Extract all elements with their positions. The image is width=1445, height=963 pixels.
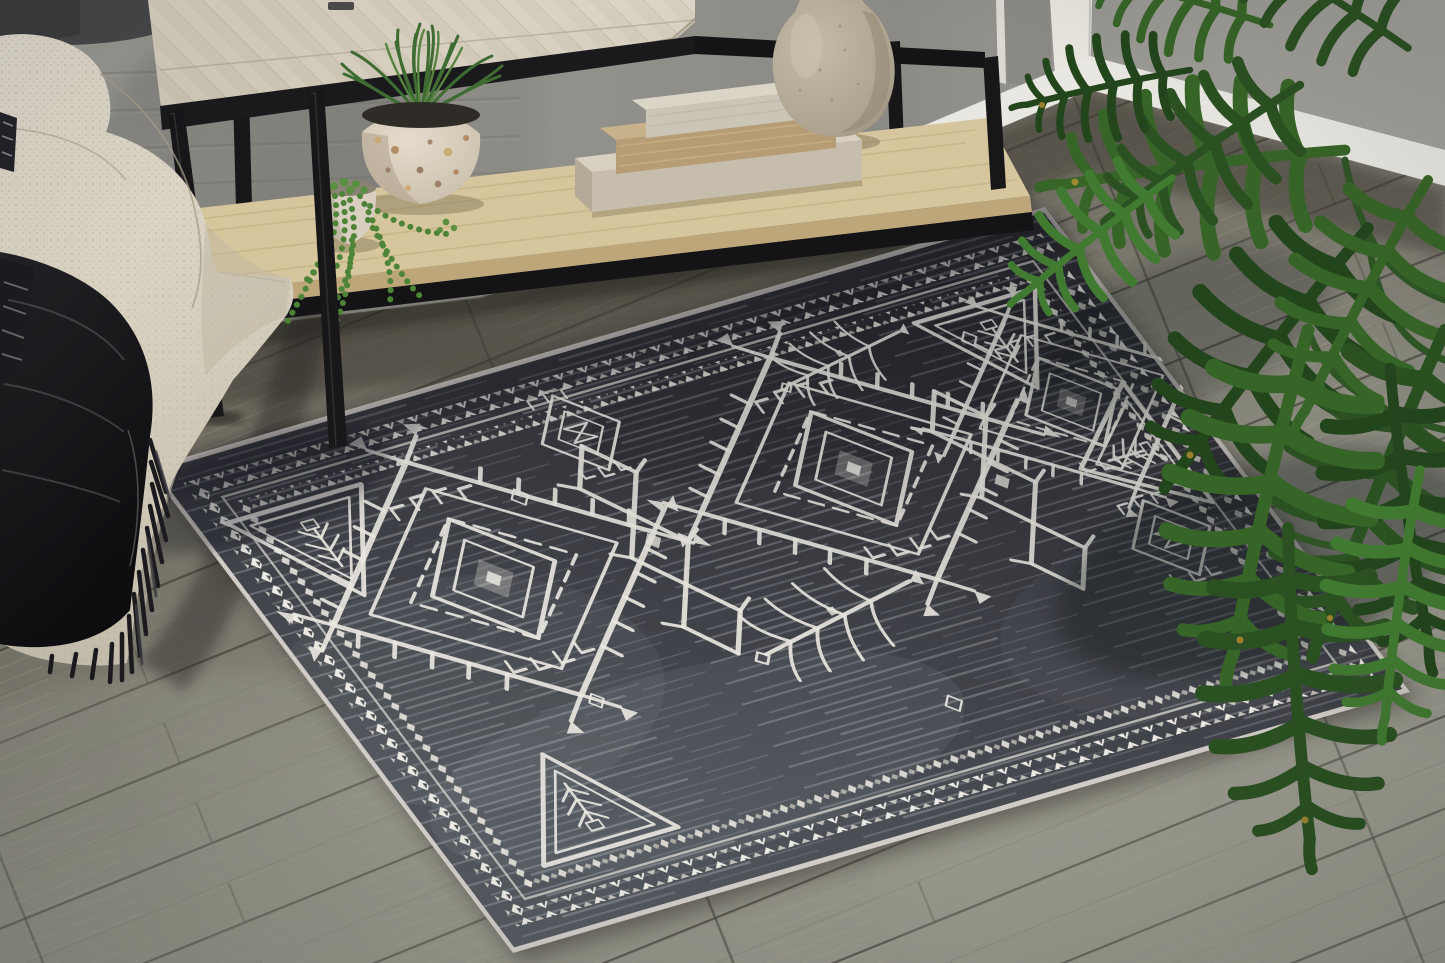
photo-figure	[0, 0, 1445, 963]
living-room-rug-photo	[0, 0, 1445, 963]
vignette	[0, 0, 1445, 963]
